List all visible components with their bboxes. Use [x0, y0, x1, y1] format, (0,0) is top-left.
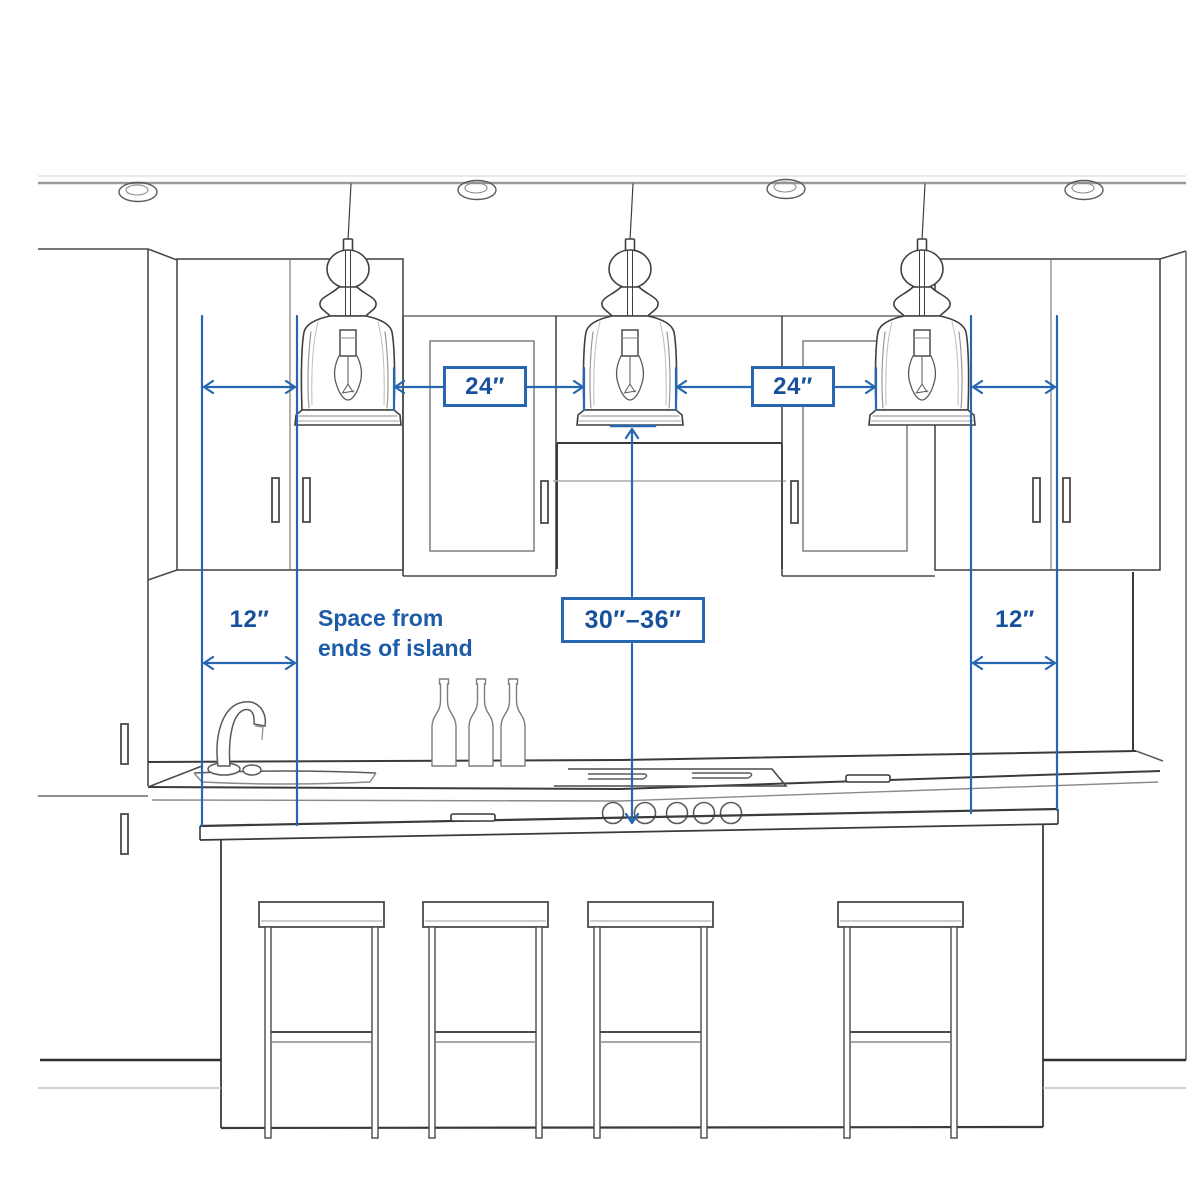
faucet-icon — [194, 702, 376, 784]
cabinet-handle-icon — [121, 724, 128, 764]
wine-bottle-icon — [432, 679, 525, 766]
cabinet-handle-icon — [1063, 478, 1070, 522]
island-end-space-note: Space from ends of island — [318, 603, 528, 664]
cabinet-handle-icon — [272, 478, 279, 522]
ceiling — [38, 176, 1186, 183]
cabinet-handle-icon — [1033, 478, 1040, 522]
drawer-handle-icon — [451, 814, 495, 821]
dimension-label-island-end-left: 12″ — [202, 606, 297, 634]
dimension-label-pendant-height: 30″–36″ — [561, 597, 705, 643]
control-knob-icon — [603, 803, 742, 824]
cabinet-handle-icon — [791, 481, 798, 523]
dimension-label-pendant-spacing-left: 24″ — [443, 366, 527, 407]
bar-stool-icon — [259, 902, 963, 1138]
kitchen-pendant-spacing-diagram: 24″ 24″ 30″–36″ 12″ 12″ Space from ends … — [0, 0, 1200, 1200]
cabinet-handle-icon — [303, 478, 310, 522]
left-tall-cabinet — [38, 249, 148, 854]
dimension-label-island-end-right: 12″ — [972, 606, 1058, 634]
floor — [38, 1060, 1186, 1088]
note-line-2: ends of island — [318, 635, 473, 661]
counter — [148, 751, 1163, 801]
note-line-1: Space from — [318, 605, 443, 631]
cabinet-handle-icon — [541, 481, 548, 523]
kitchen-island — [200, 775, 1058, 1128]
dimension-label-pendant-spacing-right: 24″ — [751, 366, 835, 407]
cooktop-icon — [554, 769, 786, 786]
right-upper-cabinets — [935, 251, 1186, 1060]
drawer-handle-icon — [846, 775, 890, 782]
cabinet-handle-icon — [121, 814, 128, 854]
